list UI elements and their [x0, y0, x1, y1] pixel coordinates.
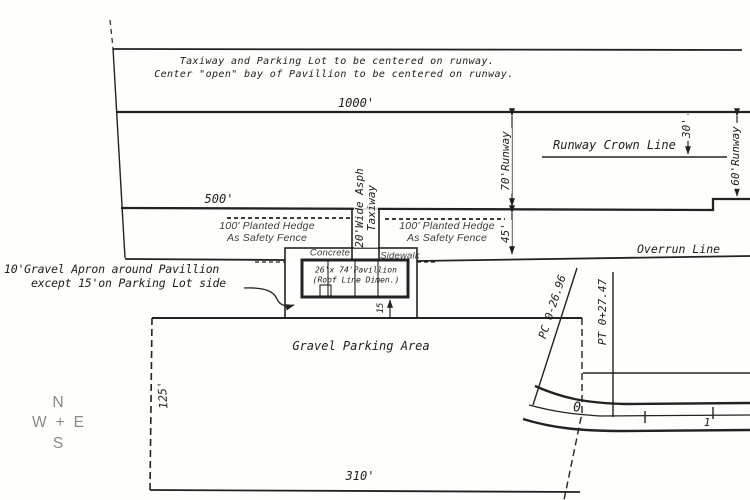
hedge-east-line1: 100' Planted Hedge	[399, 220, 495, 232]
overrun-line-label: Overrun Line	[637, 243, 720, 256]
dim-60-runway-label: 60'Runway	[730, 123, 742, 189]
compass-south: S	[22, 434, 94, 454]
hedge-west-line1: 100' Planted Hedge	[219, 220, 315, 232]
dim-70-runway-label: 70'Runway	[500, 128, 512, 194]
compass-north: N	[22, 393, 94, 413]
road-south-edge	[523, 419, 750, 431]
parking-south-edge	[150, 490, 580, 492]
dim-45-label: 45'	[500, 220, 512, 246]
overrun-line-west	[125, 259, 285, 260]
access-road	[523, 386, 750, 431]
taxiway-label-line2: Taxiway	[366, 168, 378, 247]
compass-middle-row: W + E	[22, 413, 94, 433]
pavilion-label: 26'x 74'Pavillion (Roof Line Dimen.)	[313, 265, 400, 284]
runway-crown-label: Runway Crown Line	[553, 139, 676, 152]
dim-125-label: 125'	[156, 381, 171, 410]
hedge-west-line2: As Safety Fence	[219, 232, 315, 244]
centering-note-line1: Taxiway and Parking Lot to be centered o…	[180, 56, 495, 67]
hedge-label-east: 100' Planted Hedge As Safety Fence	[399, 220, 495, 244]
parking-area-label: Gravel Parking Area	[292, 340, 429, 353]
pt-station-label: PT 0+27.47	[597, 279, 609, 345]
taxiway-label: 20'Wide Asph Taxiway	[354, 168, 378, 247]
centering-note-line2: Center "open" bay of Pavillion to be cen…	[154, 69, 514, 80]
compass-plus-icon: +	[56, 413, 65, 433]
compass-rose: N W + E S	[22, 393, 94, 454]
west-boundary-dashed-tip	[110, 20, 113, 48]
overrun-line-group	[125, 256, 750, 261]
road-centerline	[529, 405, 750, 416]
dim-30-label: 30'	[681, 115, 693, 141]
compass-west: W	[32, 413, 47, 433]
compass-east: E	[74, 413, 84, 433]
station-0-label: 0	[573, 402, 581, 417]
pavilion-label-line1: 26'x 74'Pavillion	[313, 265, 400, 275]
station-lines	[533, 268, 750, 417]
dim-15-label: 15	[376, 303, 386, 314]
hedge-east-line2: As Safety Fence	[399, 232, 495, 244]
west-boundary-line	[113, 48, 125, 258]
road-north-edge	[535, 386, 750, 404]
overrun-line-east	[417, 256, 750, 261]
north-clear-zone-line	[113, 49, 742, 50]
concrete-label: Concrete	[310, 249, 350, 260]
dim-500-label: 500'	[205, 193, 234, 206]
sidewalk-label: Sidewalk	[380, 252, 420, 263]
pavilion-label-line2: (Roof Line Dimen.)	[313, 275, 400, 285]
dim-310-label: 310'	[346, 470, 375, 483]
hedge-label-west: 100' Planted Hedge As Safety Fence	[219, 220, 315, 244]
dim-1000-label: 1000'	[338, 97, 374, 110]
apron-note-line2: except 15'on Parking Lot side	[31, 277, 226, 290]
station-1-label: 1	[704, 417, 711, 429]
site-plan-drawing: Taxiway and Parking Lot to be centered o…	[0, 0, 750, 500]
apron-note-line1: 10'Gravel Apron around Pavillion	[4, 263, 219, 276]
parking-west-edge-dashed	[150, 318, 152, 490]
apron-note-leader-arrow	[244, 288, 294, 306]
